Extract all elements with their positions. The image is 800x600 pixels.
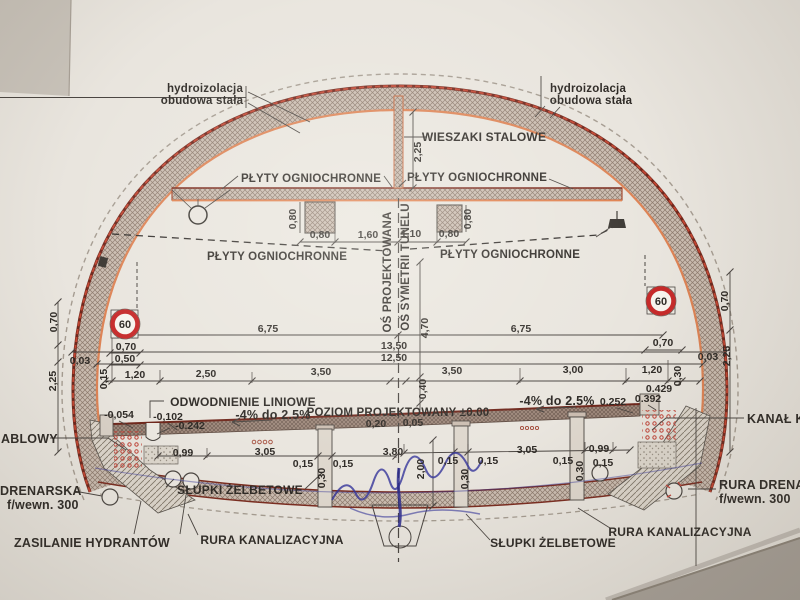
dimension-label: 0,15 [478,455,499,467]
dimension-label: 13,50 [381,340,407,352]
dimension-label: 0,80 [310,229,331,241]
label-design-level: POZIOM PROJEKTOWANY ±0.00 [307,407,490,419]
photographed-drawing: 60 60 hydroizolacja obudowa stała hydroi… [0,0,800,600]
dimension-label: 2,50 [196,368,217,380]
dimension-label: 2,25 [721,346,733,367]
label-drain-pipe-right-1: RURA DRENAR [719,478,800,492]
dimension-label: 0,15 [98,369,110,390]
dimension-label: 0,80 [287,209,299,230]
label-hydro-left-1: hydroizolacja [167,83,243,95]
label-slope-left: -4% do 2.5% [235,408,310,422]
drain-pipe-left [102,489,118,505]
dimension-label: 0,30 [574,461,586,482]
dimension-label: 0,80 [462,209,474,230]
label-drain-pipe-left-2: f/wewn. 300 [7,498,79,512]
dimension-label: 0,15 [593,457,614,469]
speed-limit-sign-right: 60 [646,286,676,316]
dimension-label: 0,15 [438,455,459,467]
label-axis-symmetry: OŚ SYMETRII TUNELU [399,203,412,331]
label-drain-pipe-left-1: DRENARSKA [0,484,82,498]
lamp-icon [189,206,207,224]
dimension-label: 0,50 [115,353,136,365]
dimension-label: 0,99 [589,443,610,455]
label-rc-posts-left: SŁUPKI ŻELBETOWE [177,482,303,497]
label-fire-boards: PŁYTY OGNIOCHRONNE [207,251,347,263]
dimension-label: 0.252 [600,396,626,408]
dimension-label: 0,30 [672,366,684,387]
label-hydrant-supply: ZASILANIE HYDRANTÓW [14,535,170,550]
label-cable-duct-right: KANAŁ K [747,412,800,426]
dimension-label: 0,99 [173,447,194,459]
dimension-label: 0,70 [653,337,674,349]
speed-limit-value: 60 [119,319,131,331]
dimension-label: 0.392 [635,393,661,405]
dimension-label: 12,50 [381,352,407,364]
cable-duct-marker-right [642,410,676,440]
dimension-label: 3,05 [255,446,276,458]
dimension-label: -0.242 [175,420,205,432]
dimension-label: 0,20 [366,418,387,430]
dimension-label: 0,70 [116,341,137,353]
dimension-label: 3,50 [442,365,463,377]
dimension-label: 0,70 [48,312,60,333]
dimension-label: 1,60 [358,229,379,241]
dimension-label: 1,10 [401,228,422,240]
dimension-label: 0,30 [316,468,328,489]
tunnel-cross-section-drawing: 60 60 hydroizolacja obudowa stała hydroi… [0,0,800,600]
label-steel-hangers: WIESZAKI STALOWE [422,130,546,144]
label-sewer-pipe-left: RURA KANALIZACYJNA [200,533,343,547]
fire-board-lines [112,228,645,308]
dimension-label: 0,03 [698,351,719,363]
label-hydro-right-2: obudowa stała [550,95,633,107]
label-drain-pipe-right-2: f/wewn. 300 [719,492,791,506]
label-fire-boards: PŁYTY OGNIOCHRONNE [440,249,580,261]
dimension-label: 2,25 [412,142,424,163]
dimension-label: 2,25 [47,371,59,392]
dimension-label: 0,40 [417,379,429,400]
dimension-label: 6,75 [511,323,532,335]
dimension-label: 1,20 [125,369,146,381]
dimension-label: -0,054 [104,409,134,421]
drainage-gutter [146,423,160,441]
label-hydro-right-1: hydroizolacja [550,83,626,95]
dimension-label: 1,20 [642,364,663,376]
dimension-label: 3,50 [311,366,332,378]
dimension-label: 3,80 [383,446,404,458]
label-slope-right: -4% do 2.5% [519,394,594,408]
steel-hanger [394,96,403,188]
speed-limit-value: 60 [655,296,667,308]
dimension-label: 0,70 [719,291,731,312]
label-cable-duct-left: ABLOWY [1,432,58,446]
dimension-label: 6,75 [258,323,279,335]
dimension-label: 3,00 [563,364,584,376]
dimension-label: 2,00 [415,459,427,480]
dimension-label: 4,70 [419,318,431,339]
ceiling-slab [172,188,622,201]
dimension-label: 0,15 [333,458,354,470]
speed-limit-sign-left: 60 [110,309,140,339]
label-fire-boards: PŁYTY OGNIOCHRONNE [241,173,381,185]
dimension-label: 0,05 [403,417,424,429]
dimension-label: 0,80 [439,228,460,240]
label-rc-posts-right: SŁUPKI ŻELBETOWE [490,535,616,550]
dimension-label: 3,05 [517,444,538,456]
label-hydro-left-2: obudowa stała [161,95,244,107]
dimension-label: 0,03 [70,355,91,367]
dimension-label: 0,15 [293,458,314,470]
lamp-icon [608,219,626,228]
dimension-label: 0,30 [459,469,471,490]
label-fire-boards: PŁYTY OGNIOCHRONNE [407,172,547,184]
cable-duct-marker-left [114,431,142,469]
label-linear-drainage: ODWODNIENIE LINIOWE [170,395,316,409]
label-axis-design: OŚ PROJEKTOWANA [381,212,394,333]
dimension-label: 0,15 [553,455,574,467]
label-sewer-pipe-right: RURA KANALIZACYJNA [608,525,751,539]
